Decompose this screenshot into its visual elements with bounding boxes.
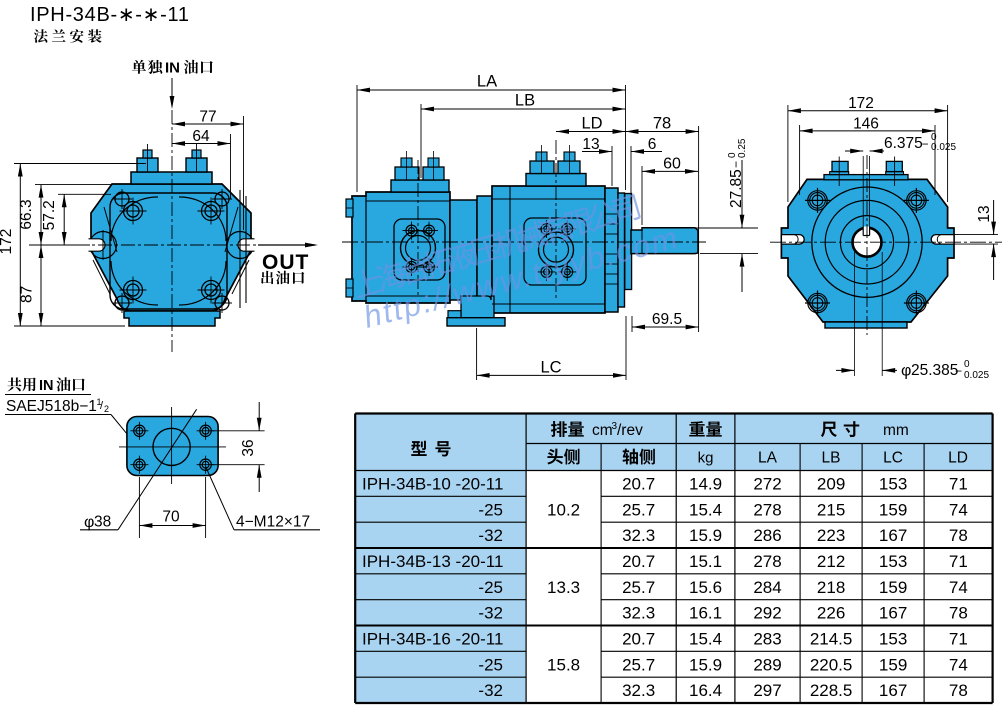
svg-text:209: 209: [817, 474, 845, 493]
svg-text:-32: -32: [478, 526, 503, 545]
svg-text:−: −: [922, 137, 929, 151]
svg-text:70: 70: [162, 509, 180, 526]
svg-text:OUT: OUT: [262, 251, 309, 274]
svg-text:214.5: 214.5: [810, 629, 853, 648]
svg-text:20.7: 20.7: [622, 474, 655, 493]
svg-text:-32: -32: [478, 604, 503, 623]
svg-text:159: 159: [879, 500, 907, 519]
svg-text:71: 71: [949, 474, 968, 493]
svg-text:71: 71: [949, 629, 968, 648]
svg-text:74: 74: [949, 578, 968, 597]
svg-text:215: 215: [817, 500, 845, 519]
svg-text:228.5: 228.5: [810, 681, 853, 700]
svg-text:/rev: /rev: [617, 422, 643, 439]
svg-text:SAEJ518b−1: SAEJ518b−1: [6, 398, 97, 415]
svg-text:278: 278: [753, 552, 781, 571]
svg-text:64: 64: [192, 128, 210, 145]
svg-text:-25: -25: [478, 500, 503, 519]
svg-text:IPH-34B-13 -20-11: IPH-34B-13 -20-11: [362, 552, 503, 571]
svg-text:78: 78: [653, 115, 671, 133]
svg-text:172: 172: [848, 95, 874, 112]
svg-text:15.4: 15.4: [689, 629, 722, 648]
svg-text:278: 278: [753, 500, 781, 519]
svg-text:57.2: 57.2: [41, 200, 58, 230]
svg-text:32.3: 32.3: [622, 681, 655, 700]
svg-text:15.9: 15.9: [689, 655, 722, 674]
svg-text:297: 297: [753, 681, 781, 700]
svg-text:153: 153: [879, 474, 907, 493]
svg-text:0.25: 0.25: [737, 138, 748, 158]
svg-text:159: 159: [879, 578, 907, 597]
svg-text:LD: LD: [948, 450, 968, 467]
svg-text:146: 146: [853, 116, 879, 133]
svg-text:cm: cm: [592, 422, 613, 439]
svg-text:226: 226: [817, 604, 845, 623]
svg-text:0.025: 0.025: [964, 370, 989, 381]
svg-text:172: 172: [0, 229, 15, 255]
svg-text:212: 212: [817, 552, 845, 571]
svg-text:153: 153: [879, 552, 907, 571]
svg-text:4−M12×17: 4−M12×17: [236, 514, 310, 531]
svg-text:LC: LC: [540, 359, 561, 377]
svg-text:IN: IN: [165, 60, 180, 77]
svg-text:20.7: 20.7: [622, 552, 655, 571]
svg-text:60: 60: [663, 156, 681, 173]
svg-text:16.1: 16.1: [689, 604, 722, 623]
svg-text:38: 38: [94, 514, 111, 531]
svg-text:25.7: 25.7: [622, 578, 655, 597]
svg-text:15.1: 15.1: [689, 552, 722, 571]
svg-text:223: 223: [817, 526, 845, 545]
svg-text:IN: IN: [39, 378, 54, 394]
svg-text:0: 0: [964, 359, 970, 370]
svg-text:16.4: 16.4: [689, 681, 722, 700]
svg-text:0.025: 0.025: [931, 142, 956, 153]
svg-text:13: 13: [976, 205, 993, 222]
svg-text:292: 292: [753, 604, 781, 623]
svg-text:6: 6: [648, 136, 657, 153]
svg-text:φ: φ: [901, 363, 911, 380]
svg-text:74: 74: [949, 655, 968, 674]
svg-text:15.4: 15.4: [689, 500, 722, 519]
svg-text:25.385: 25.385: [911, 362, 958, 379]
svg-text:153: 153: [879, 629, 907, 648]
svg-text:LA: LA: [477, 73, 497, 91]
svg-text:-32: -32: [478, 681, 503, 700]
svg-text:LD: LD: [581, 115, 602, 133]
svg-text:87: 87: [19, 286, 36, 303]
svg-text:283: 283: [753, 629, 781, 648]
svg-text:69.5: 69.5: [652, 311, 682, 328]
svg-text:13: 13: [582, 136, 599, 153]
svg-text:φ: φ: [84, 514, 94, 531]
svg-text:66.3: 66.3: [18, 199, 35, 229]
svg-text:77: 77: [199, 109, 216, 126]
svg-text:LC: LC: [883, 450, 903, 467]
svg-text:71: 71: [949, 552, 968, 571]
svg-text:kg: kg: [698, 450, 714, 467]
svg-text:36: 36: [240, 439, 257, 456]
svg-text:286: 286: [753, 526, 781, 545]
svg-text:78: 78: [949, 526, 968, 545]
svg-text:220.5: 220.5: [810, 655, 853, 674]
svg-text:218: 218: [817, 578, 845, 597]
svg-text:15.8: 15.8: [547, 655, 580, 674]
svg-text:74: 74: [949, 500, 968, 519]
svg-text:20.7: 20.7: [622, 629, 655, 648]
svg-text:78: 78: [949, 604, 968, 623]
svg-text:159: 159: [879, 655, 907, 674]
svg-text:284: 284: [753, 578, 781, 597]
svg-text:27.85: 27.85: [728, 169, 745, 208]
svg-text:LB: LB: [822, 450, 841, 467]
svg-text:167: 167: [879, 604, 907, 623]
svg-text:−: −: [955, 364, 962, 378]
svg-text:167: 167: [879, 526, 907, 545]
svg-text:167: 167: [879, 681, 907, 700]
svg-text:15.6: 15.6: [689, 578, 722, 597]
svg-text:-25: -25: [478, 655, 503, 674]
svg-text:13.3: 13.3: [547, 578, 580, 597]
svg-text:-25: -25: [478, 578, 503, 597]
svg-text:272: 272: [753, 474, 781, 493]
svg-text:LA: LA: [758, 450, 778, 467]
svg-text:IPH-34B-∗-∗-11: IPH-34B-∗-∗-11: [30, 4, 190, 26]
svg-text:25.7: 25.7: [622, 655, 655, 674]
svg-text:LB: LB: [515, 92, 535, 110]
svg-text:IPH-34B-16 -20-11: IPH-34B-16 -20-11: [362, 629, 503, 648]
svg-text:32.3: 32.3: [622, 604, 655, 623]
svg-text:6.375: 6.375: [884, 135, 923, 152]
svg-text:289: 289: [753, 655, 781, 674]
svg-text:14.9: 14.9: [689, 474, 722, 493]
svg-text:15.9: 15.9: [689, 526, 722, 545]
svg-text:IPH-34B-10 -20-11: IPH-34B-10 -20-11: [362, 474, 503, 493]
svg-text:−: −: [729, 161, 743, 168]
svg-text:2: 2: [104, 404, 109, 414]
svg-text:78: 78: [949, 681, 968, 700]
svg-text:25.7: 25.7: [622, 500, 655, 519]
svg-text:mm: mm: [883, 422, 909, 439]
svg-text:32.3: 32.3: [622, 526, 655, 545]
svg-text:10.2: 10.2: [547, 500, 580, 519]
